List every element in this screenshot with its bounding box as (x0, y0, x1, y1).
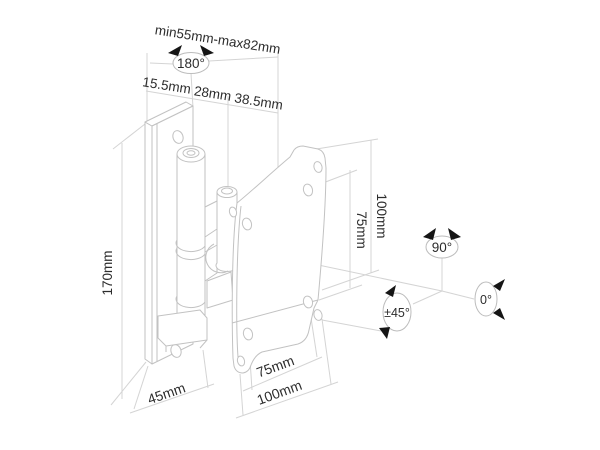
label-base-depth: 45mm (145, 379, 187, 407)
clevis-arm-upper (205, 201, 217, 237)
bracket-drawing (145, 102, 326, 373)
label-bracket-height: 170mm (100, 250, 115, 295)
label-rest-angle: 0° (480, 293, 492, 307)
wall-mount-technical-drawing: min55mm-max82mm 15.5mm 28mm 38.5mm 170mm… (0, 0, 600, 450)
label-swivel-angle: 180° (177, 56, 205, 71)
label-vesa-vertical-outer: 100mm (374, 193, 389, 238)
witness-b100-left (240, 374, 243, 415)
hinge-barrel-body (176, 154, 205, 334)
dimension-line-width-range (150, 57, 278, 64)
label-vesa-vertical-inner: 75mm (354, 211, 369, 249)
pivot-hole (222, 188, 233, 194)
label-depth-segment-1: 15.5mm (141, 74, 192, 96)
axis-line-45 (413, 291, 442, 304)
label-tilt-angle: ±45° (384, 306, 410, 320)
label-vesa-horizontal-inner: 75mm (254, 352, 296, 380)
witness-45-right (203, 350, 208, 388)
extension-170-top (113, 124, 145, 149)
axis-line-tilt-edge (322, 320, 381, 331)
angle-45-arrow-bottom-icon (379, 327, 390, 339)
label-depth-segment-2: 28mm (193, 83, 232, 104)
wall-plate-side (145, 122, 152, 364)
witness-45-left (134, 366, 148, 409)
extension-170-bottom (111, 362, 146, 405)
witness-b100-right (322, 319, 331, 384)
axis-line-0 (442, 291, 474, 299)
label-pivot-angle: 90° (432, 240, 452, 255)
hinge-foot (158, 310, 207, 346)
hinge-pin (187, 151, 195, 155)
witness-line-mid-1 (191, 73, 193, 108)
extension-r75-bottom (319, 285, 362, 300)
dimension-diagram: min55mm-max82mm 15.5mm 28mm 38.5mm 170mm… (0, 0, 600, 450)
